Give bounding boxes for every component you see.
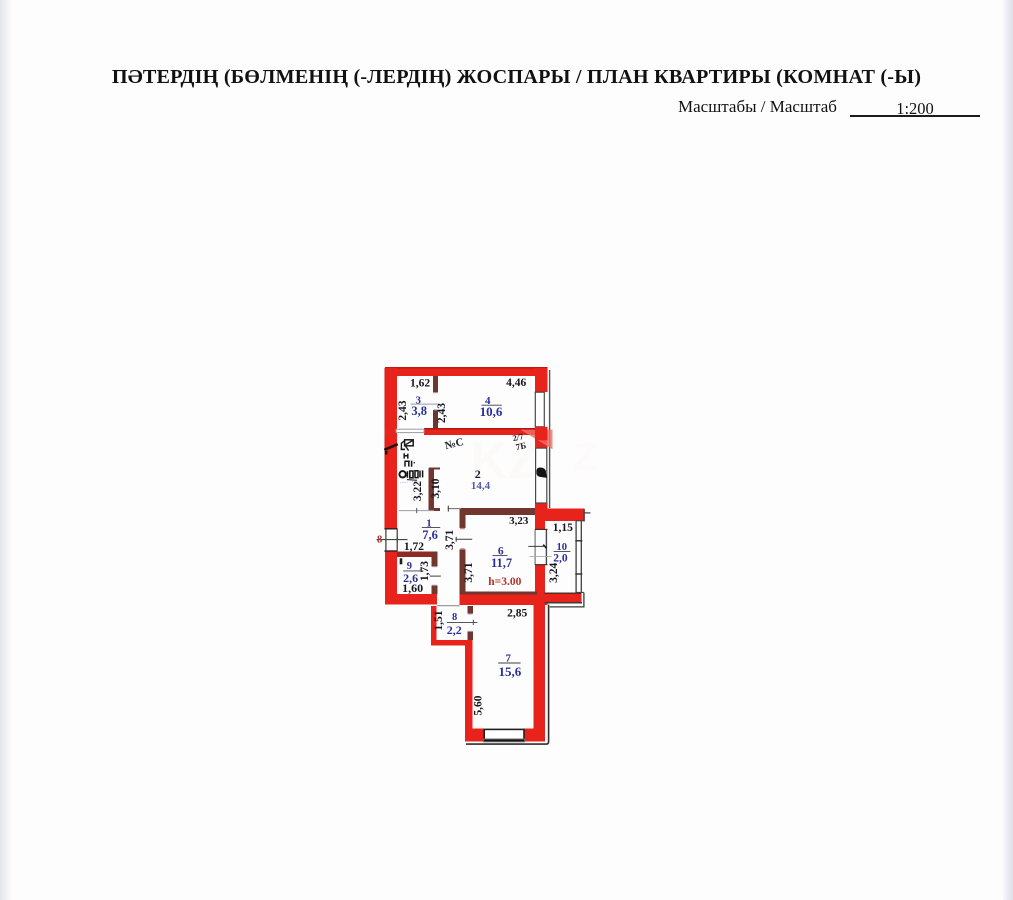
- svg-text:14,4: 14,4: [471, 480, 491, 492]
- svg-text:10,6: 10,6: [480, 404, 503, 419]
- svg-text:2,0: 2,0: [553, 553, 568, 565]
- svg-text:3,10: 3,10: [430, 478, 442, 498]
- svg-text:Z: Z: [573, 435, 597, 479]
- svg-text:8: 8: [377, 535, 382, 546]
- svg-text:3,8: 3,8: [411, 404, 427, 418]
- svg-text:8: 8: [452, 612, 457, 623]
- svg-text:7,6: 7,6: [422, 528, 438, 542]
- svg-text:2,43: 2,43: [436, 403, 448, 423]
- svg-text:2,43: 2,43: [397, 400, 409, 420]
- svg-text:2,85: 2,85: [507, 607, 527, 619]
- svg-text:1,62: 1,62: [410, 378, 430, 390]
- svg-text:3,22: 3,22: [412, 481, 424, 501]
- svg-text:1,15: 1,15: [553, 522, 573, 534]
- svg-text:h=3.00: h=3.00: [488, 576, 521, 588]
- svg-text:2: 2: [475, 467, 481, 481]
- svg-text:1,51: 1,51: [433, 610, 445, 630]
- svg-text:11,7: 11,7: [491, 556, 512, 570]
- svg-text:№С: №С: [444, 436, 465, 452]
- svg-text:2,2: 2,2: [447, 623, 462, 637]
- svg-text:3,23: 3,23: [509, 515, 529, 527]
- svg-text:3,71: 3,71: [444, 529, 456, 549]
- svg-text:1,72: 1,72: [404, 541, 424, 553]
- svg-text:2,6: 2,6: [403, 571, 418, 585]
- svg-text:4,46: 4,46: [506, 377, 526, 389]
- svg-text:5,60: 5,60: [473, 695, 485, 715]
- svg-text:3,24: 3,24: [548, 562, 560, 582]
- svg-text:15,6: 15,6: [499, 664, 522, 679]
- svg-text:3,71: 3,71: [463, 562, 475, 582]
